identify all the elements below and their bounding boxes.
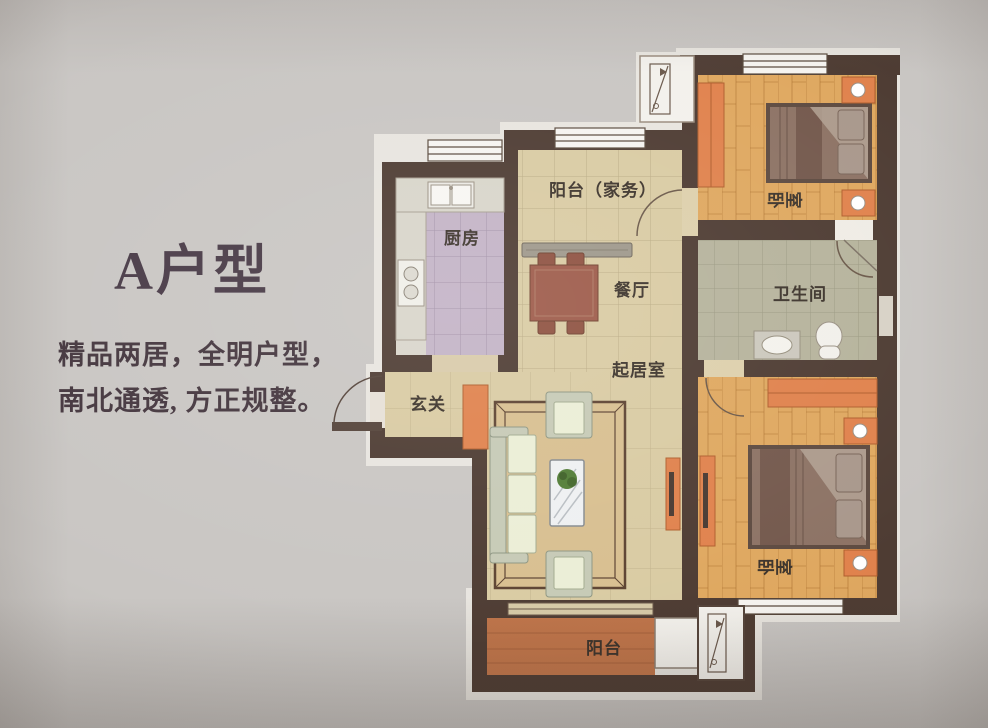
description-line-1: 精品两居，全明户型， — [58, 332, 368, 378]
ac-platform-north — [640, 56, 694, 122]
balcony-slider — [508, 603, 653, 615]
room-label-service-balcony: 阳台（家务） — [528, 176, 678, 201]
room-label-kitchen: 厨房 — [434, 224, 490, 249]
brochure-photo: A户型 精品两居，全明户型， 南北通透, 方正规整。 — [0, 0, 988, 728]
room-label-foyer: 玄关 — [402, 390, 454, 415]
living-room-set — [490, 392, 625, 597]
plan-description: 精品两居，全明户型， 南北通透, 方正规整。 — [58, 332, 368, 424]
description-line-2: 南北通透, 方正规整。 — [58, 378, 368, 424]
floorplan: 阳台（家务） 厨房 餐厅 卧室 卫生间 起居室 玄关 卧室 阳台 — [330, 48, 900, 703]
room-label-bedroom-south: 卧室 — [752, 555, 800, 580]
room-label-bathroom: 卫生间 — [758, 280, 842, 305]
room-label-bedroom-north: 卧室 — [764, 188, 808, 213]
room-label-dining: 餐厅 — [606, 276, 658, 301]
room-label-living-room: 起居室 — [598, 356, 680, 381]
room-label-balcony: 阳台 — [576, 634, 632, 659]
page-title: A户型 — [56, 226, 328, 305]
foyer-cabinet — [463, 385, 488, 449]
